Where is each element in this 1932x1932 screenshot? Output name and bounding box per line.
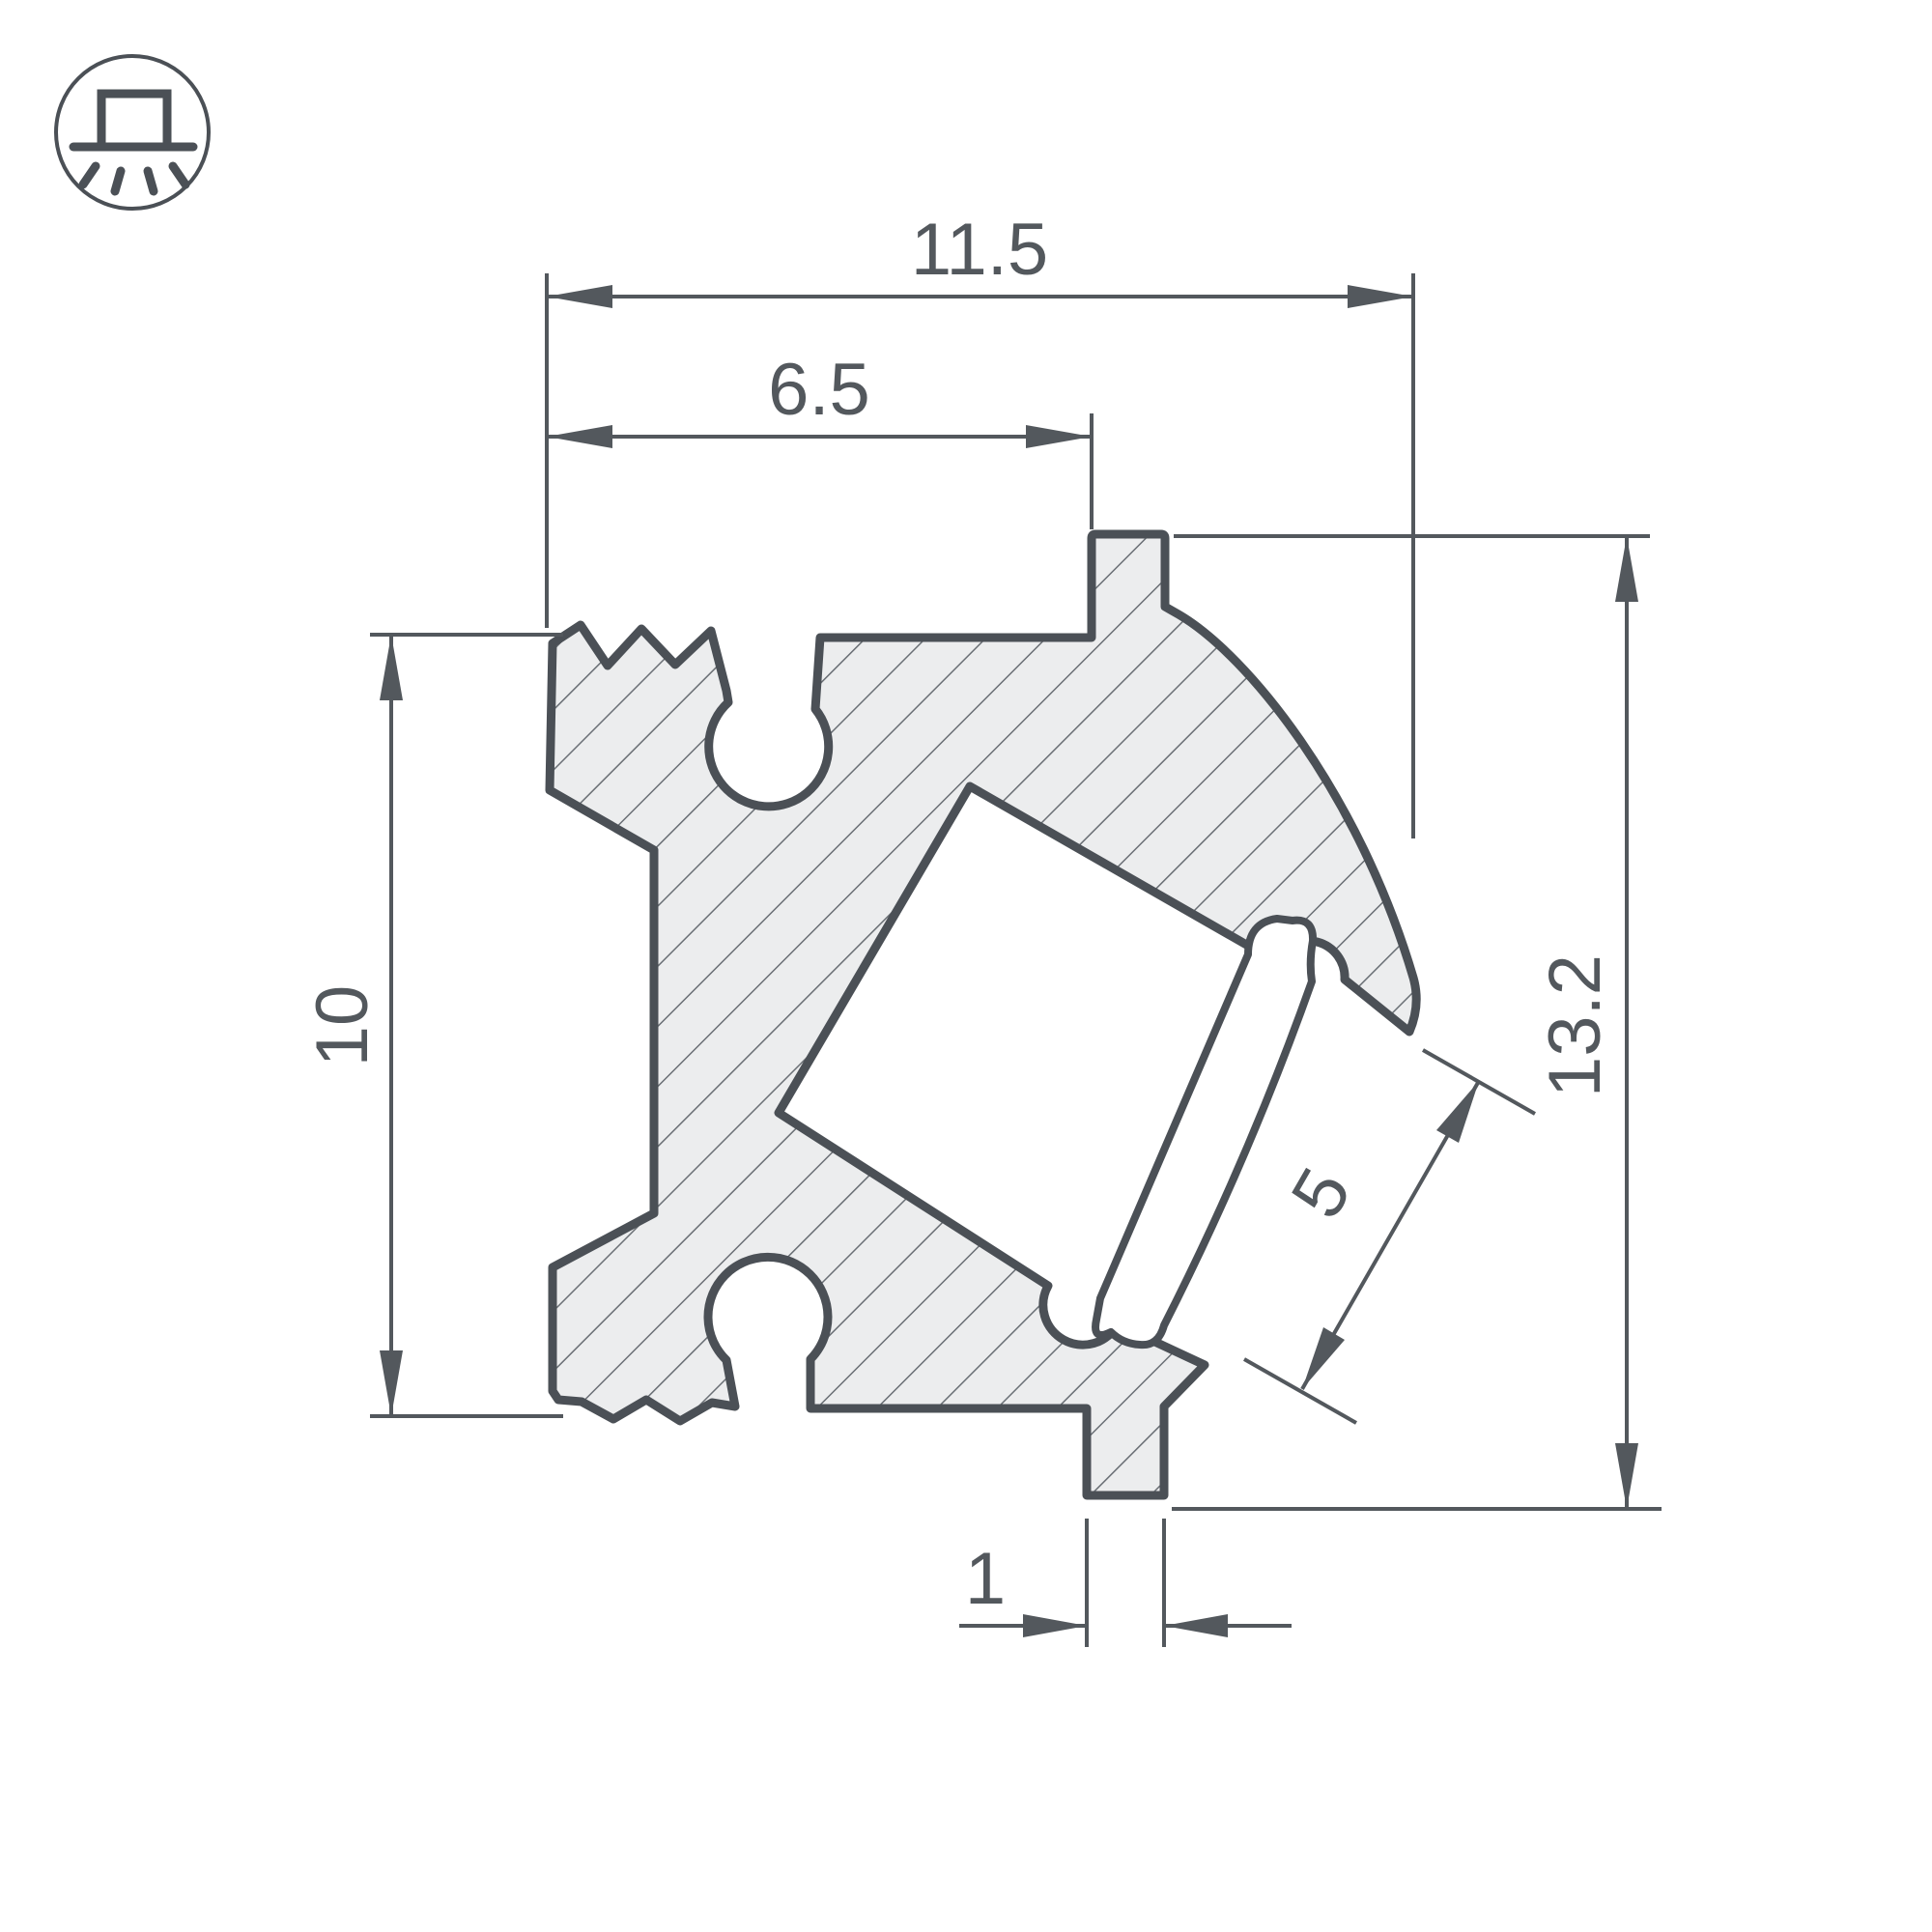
profile-drawing-canvas: 11.5 6.5 10 13.2 5 — [0, 0, 1932, 1932]
dimension-label-inner-width: 6.5 — [768, 349, 870, 431]
technical-drawing-page: 11.5 6.5 10 13.2 5 — [0, 0, 1932, 1932]
dimension-label-right-height: 13.2 — [1534, 954, 1616, 1097]
dimension-label-left-height: 10 — [301, 985, 384, 1067]
dimension-label-foot-width: 1 — [965, 1538, 1006, 1620]
dimension-label-top-width: 11.5 — [911, 209, 1048, 291]
